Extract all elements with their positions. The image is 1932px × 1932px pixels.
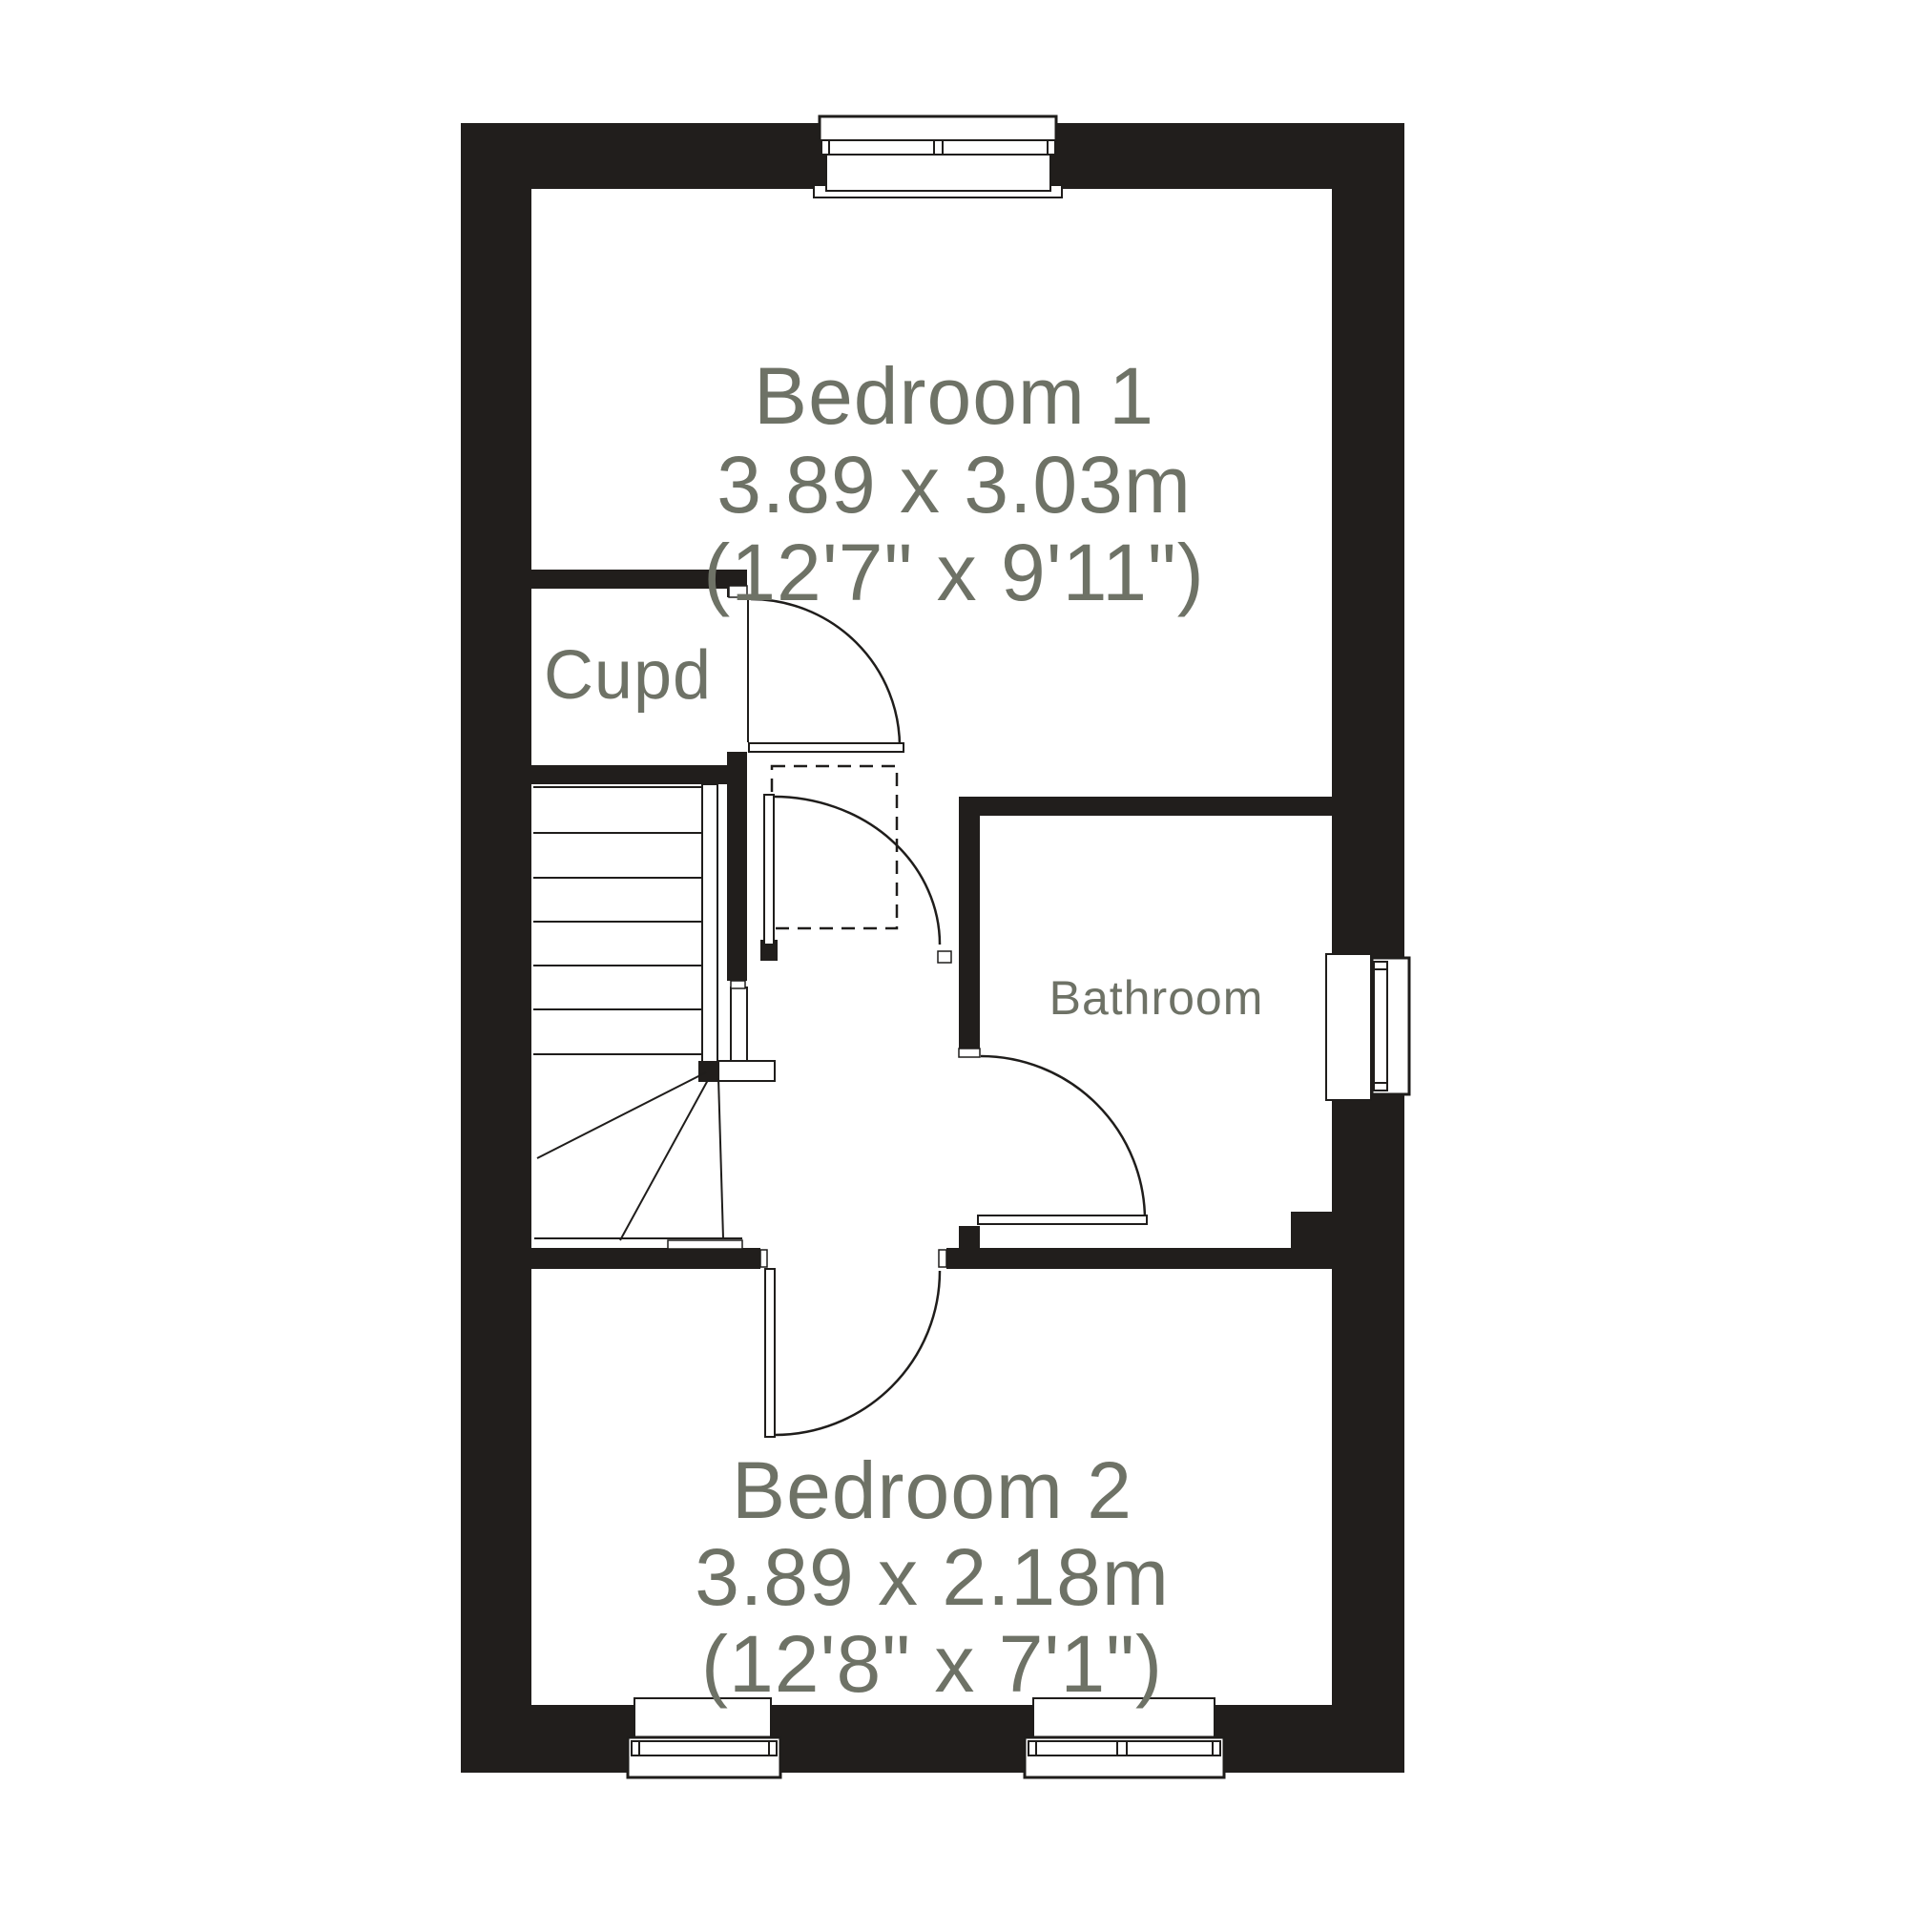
- stair-bottom-cap: [668, 1240, 742, 1249]
- stair-winder-edge: [718, 1078, 723, 1238]
- window-glazing: [1374, 962, 1387, 1091]
- door-leaf-bedroom2: [765, 1269, 775, 1437]
- wall-bedroom2-left: [531, 1248, 760, 1269]
- door-arc-bathroom: [981, 1056, 1145, 1220]
- stair-newel-post: [698, 1061, 719, 1082]
- wall-bathroom-top: [959, 797, 1334, 816]
- door-arc-bedroom1: [774, 797, 940, 945]
- door-leaf-cupboard: [749, 743, 904, 752]
- window-inner-sill: [826, 153, 1050, 191]
- door-arc-bedroom2: [775, 1271, 940, 1435]
- window-mullion: [1028, 1741, 1036, 1755]
- wall-cupboard-bottom: [531, 765, 730, 784]
- window-bedroom2-left: [628, 1698, 780, 1777]
- jamb-bathroom-door: [959, 1049, 980, 1057]
- window-bathroom-right: [1326, 954, 1409, 1100]
- window-mullion: [1374, 1083, 1387, 1091]
- room-dimensions-imperial-bedroom2: (12'8" x 7'1"): [701, 1624, 1163, 1704]
- wall-bottom: [461, 1705, 1404, 1773]
- window-mullion: [1048, 140, 1055, 155]
- dashed-bulkhead-outline: [772, 766, 897, 928]
- jamb-bedroom2-door-right: [939, 1250, 946, 1267]
- window-inner-sill: [1326, 954, 1371, 1100]
- jamb-bedroom1-door-strike: [938, 951, 951, 963]
- jamb-stairs-wall-end: [731, 981, 745, 988]
- door-arc-cupboard: [751, 599, 900, 747]
- room-dimensions-imperial-bedroom1: (12'7" x 9'11"): [703, 532, 1204, 613]
- room-label-bedroom1: Bedroom 1: [754, 356, 1154, 436]
- wall-right: [1332, 123, 1404, 1773]
- room-dimensions-metric-bedroom2: 3.89 x 2.18m: [695, 1537, 1170, 1617]
- room-label-bedroom2: Bedroom 2: [732, 1450, 1132, 1530]
- floor-plan: Bedroom 1 3.89 x 3.03m (12'7" x 9'11") C…: [0, 0, 1932, 1932]
- wall-bathroom-corner-block: [1291, 1212, 1334, 1250]
- wall-stairs-landing: [727, 752, 747, 981]
- window-mullion: [821, 140, 829, 155]
- window-bedroom1-top: [814, 116, 1062, 197]
- window-bedroom2-right: [1025, 1698, 1224, 1777]
- window-mullion: [934, 140, 943, 155]
- stair-winder-edge: [620, 1080, 708, 1240]
- window-glazing: [632, 1741, 777, 1755]
- window-mullion: [632, 1741, 639, 1755]
- stair-handrail: [702, 784, 717, 1062]
- door-leaf-bedroom1: [764, 795, 774, 945]
- stair-winder-edge: [537, 1072, 706, 1158]
- room-label-bathroom: Bathroom: [1049, 974, 1264, 1022]
- jamb-bedroom2-door-left: [760, 1250, 767, 1267]
- window-mullion: [1117, 1741, 1127, 1755]
- window-mullion: [1213, 1741, 1220, 1755]
- room-dimensions-metric-bedroom1: 3.89 x 3.03m: [717, 445, 1192, 525]
- room-label-cupboard: Cupd: [544, 641, 712, 710]
- wall-left: [461, 123, 531, 1773]
- window-mullion: [1374, 962, 1387, 969]
- window-mullion: [769, 1741, 777, 1755]
- stair-rail-return-horizontal: [717, 1061, 775, 1081]
- wall-bathroom-left-upper: [959, 797, 980, 1049]
- window-outer-frame: [820, 116, 1056, 141]
- wall-bathroom-left-stub: [959, 1226, 980, 1250]
- door-leaf-bathroom: [978, 1215, 1147, 1224]
- wall-bedroom2-right: [946, 1248, 1334, 1269]
